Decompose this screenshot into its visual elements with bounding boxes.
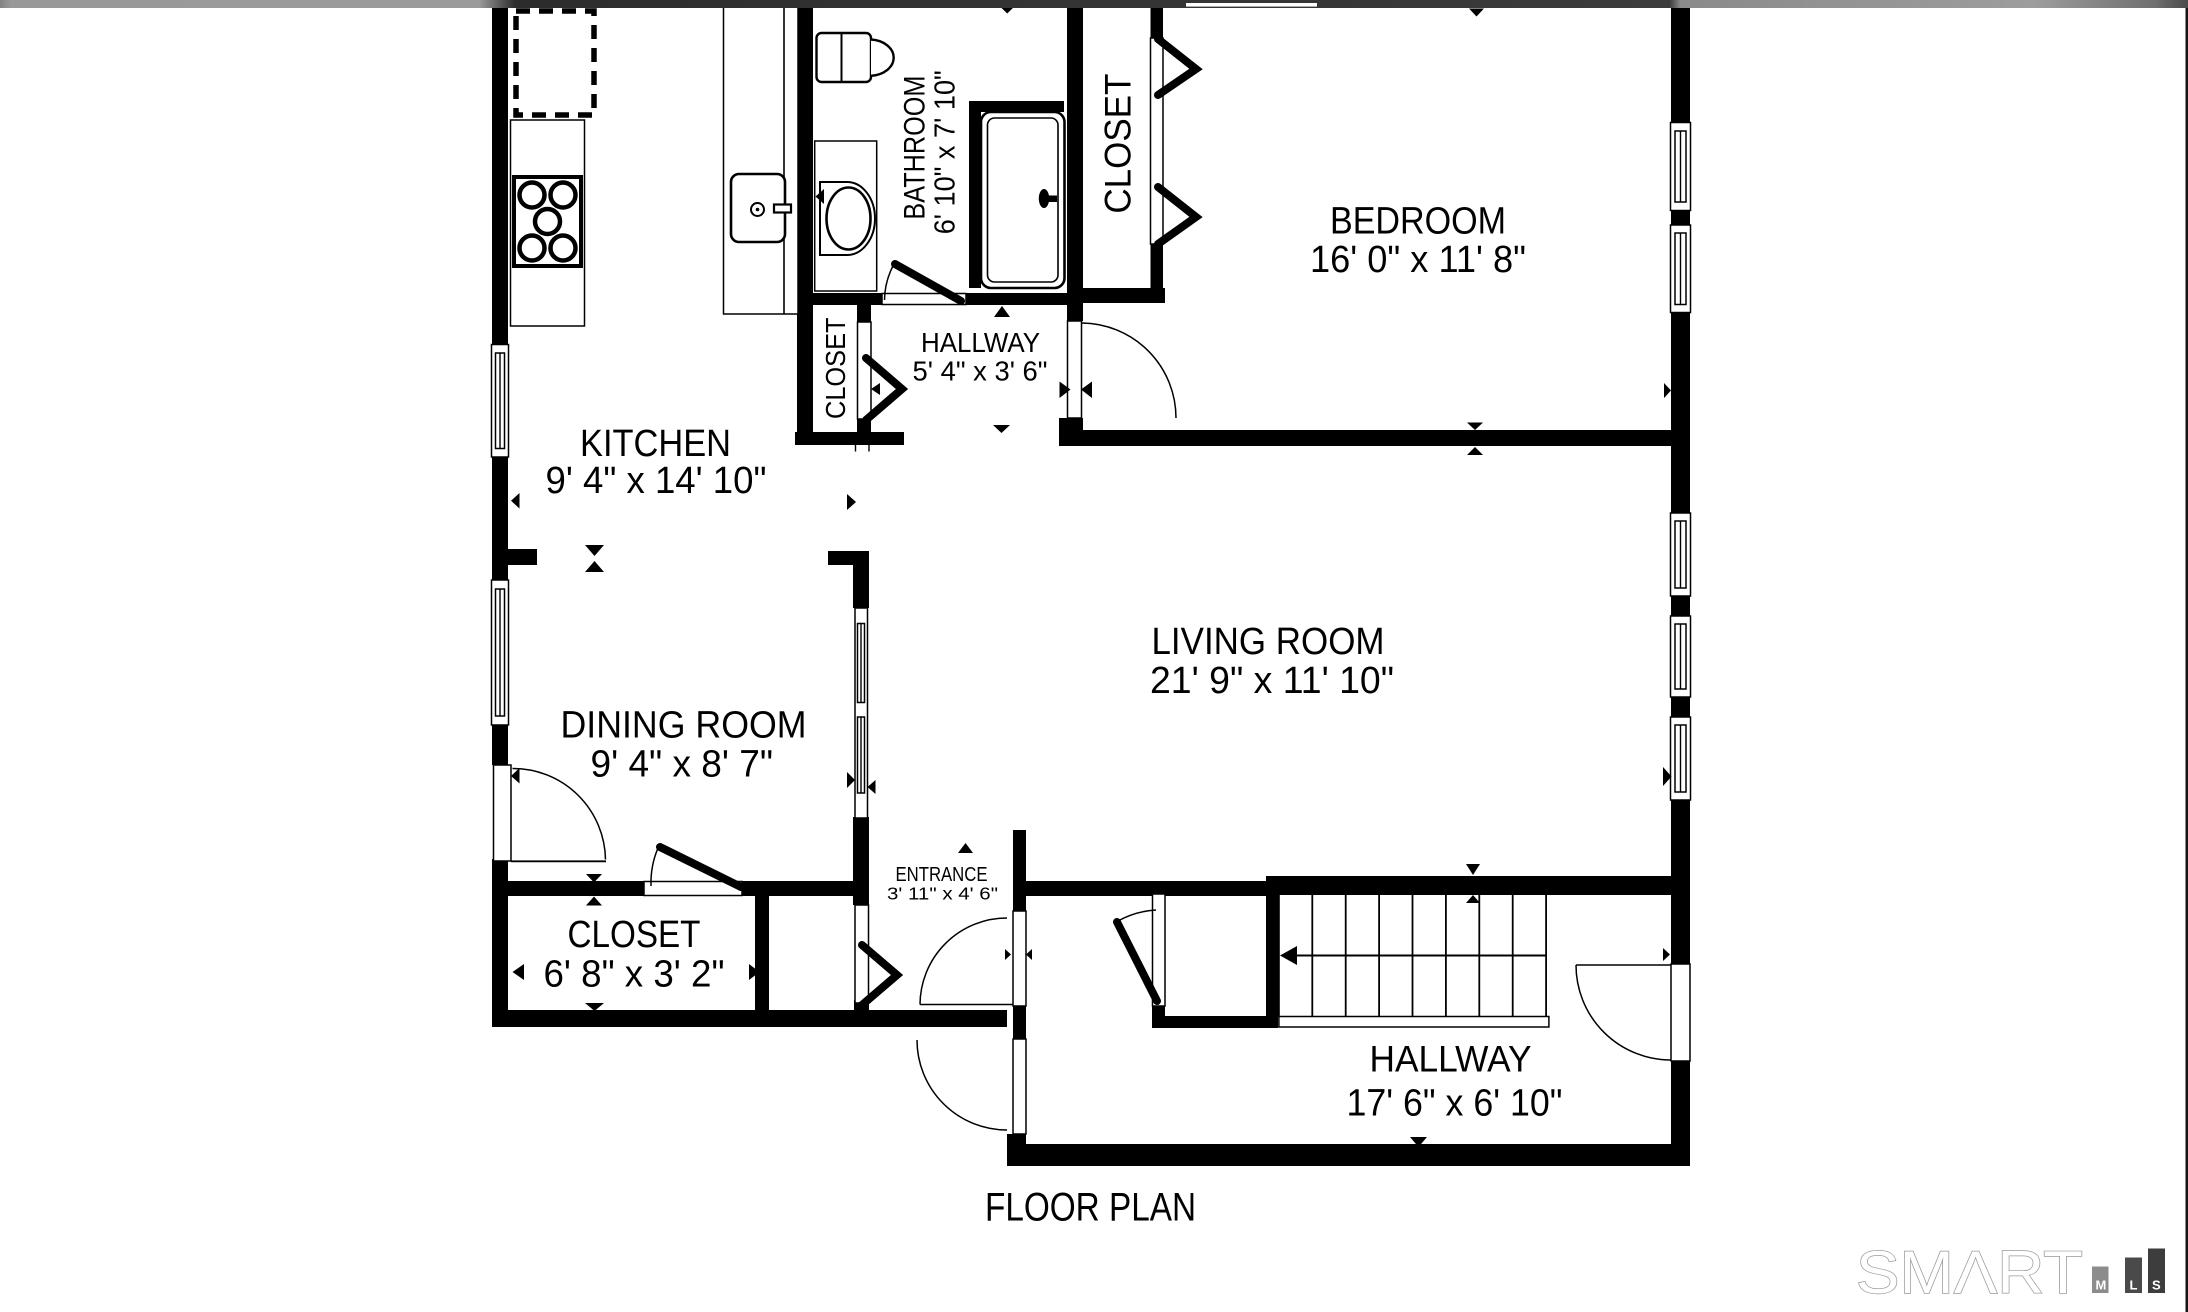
svg-text:DINING ROOM: DINING ROOM bbox=[561, 705, 807, 747]
svg-text:BEDROOM: BEDROOM bbox=[1330, 201, 1506, 243]
svg-text:FLOOR PLAN: FLOOR PLAN bbox=[985, 1186, 1196, 1230]
svg-text:CLOSET: CLOSET bbox=[1096, 74, 1138, 214]
svg-text:9' 4" x 14' 10": 9' 4" x 14' 10" bbox=[546, 460, 767, 502]
svg-text:LIVING ROOM: LIVING ROOM bbox=[1152, 621, 1385, 663]
svg-text:21' 9" x 11' 10": 21' 9" x 11' 10" bbox=[1150, 660, 1394, 702]
svg-text:9' 4" x 8' 7": 9' 4" x 8' 7" bbox=[591, 744, 774, 786]
svg-text:SMΛRT: SMΛRT bbox=[1856, 1239, 2083, 1306]
svg-text:CLOSET: CLOSET bbox=[568, 914, 701, 956]
svg-text:16' 0" x 11' 8": 16' 0" x 11' 8" bbox=[1310, 239, 1526, 281]
svg-text:5' 4" x 3' 6": 5' 4" x 3' 6" bbox=[913, 356, 1048, 387]
svg-text:CLOSET: CLOSET bbox=[820, 318, 851, 420]
svg-text:HALLWAY: HALLWAY bbox=[1370, 1039, 1532, 1080]
svg-text:17' 6" x 6' 10": 17' 6" x 6' 10" bbox=[1347, 1083, 1563, 1125]
svg-text:S: S bbox=[2152, 1278, 2161, 1293]
svg-text:M: M bbox=[2096, 1278, 2107, 1293]
svg-text:6' 8" x 3' 2": 6' 8" x 3' 2" bbox=[544, 954, 725, 996]
svg-text:6' 10" x 7' 10": 6' 10" x 7' 10" bbox=[930, 70, 962, 234]
svg-text:HALLWAY: HALLWAY bbox=[921, 327, 1040, 358]
svg-text:3' 11" x 4' 6": 3' 11" x 4' 6" bbox=[887, 884, 998, 904]
svg-text:L: L bbox=[2130, 1278, 2138, 1293]
svg-text:BATHROOM: BATHROOM bbox=[898, 76, 931, 220]
svg-text:KITCHEN: KITCHEN bbox=[580, 423, 731, 465]
